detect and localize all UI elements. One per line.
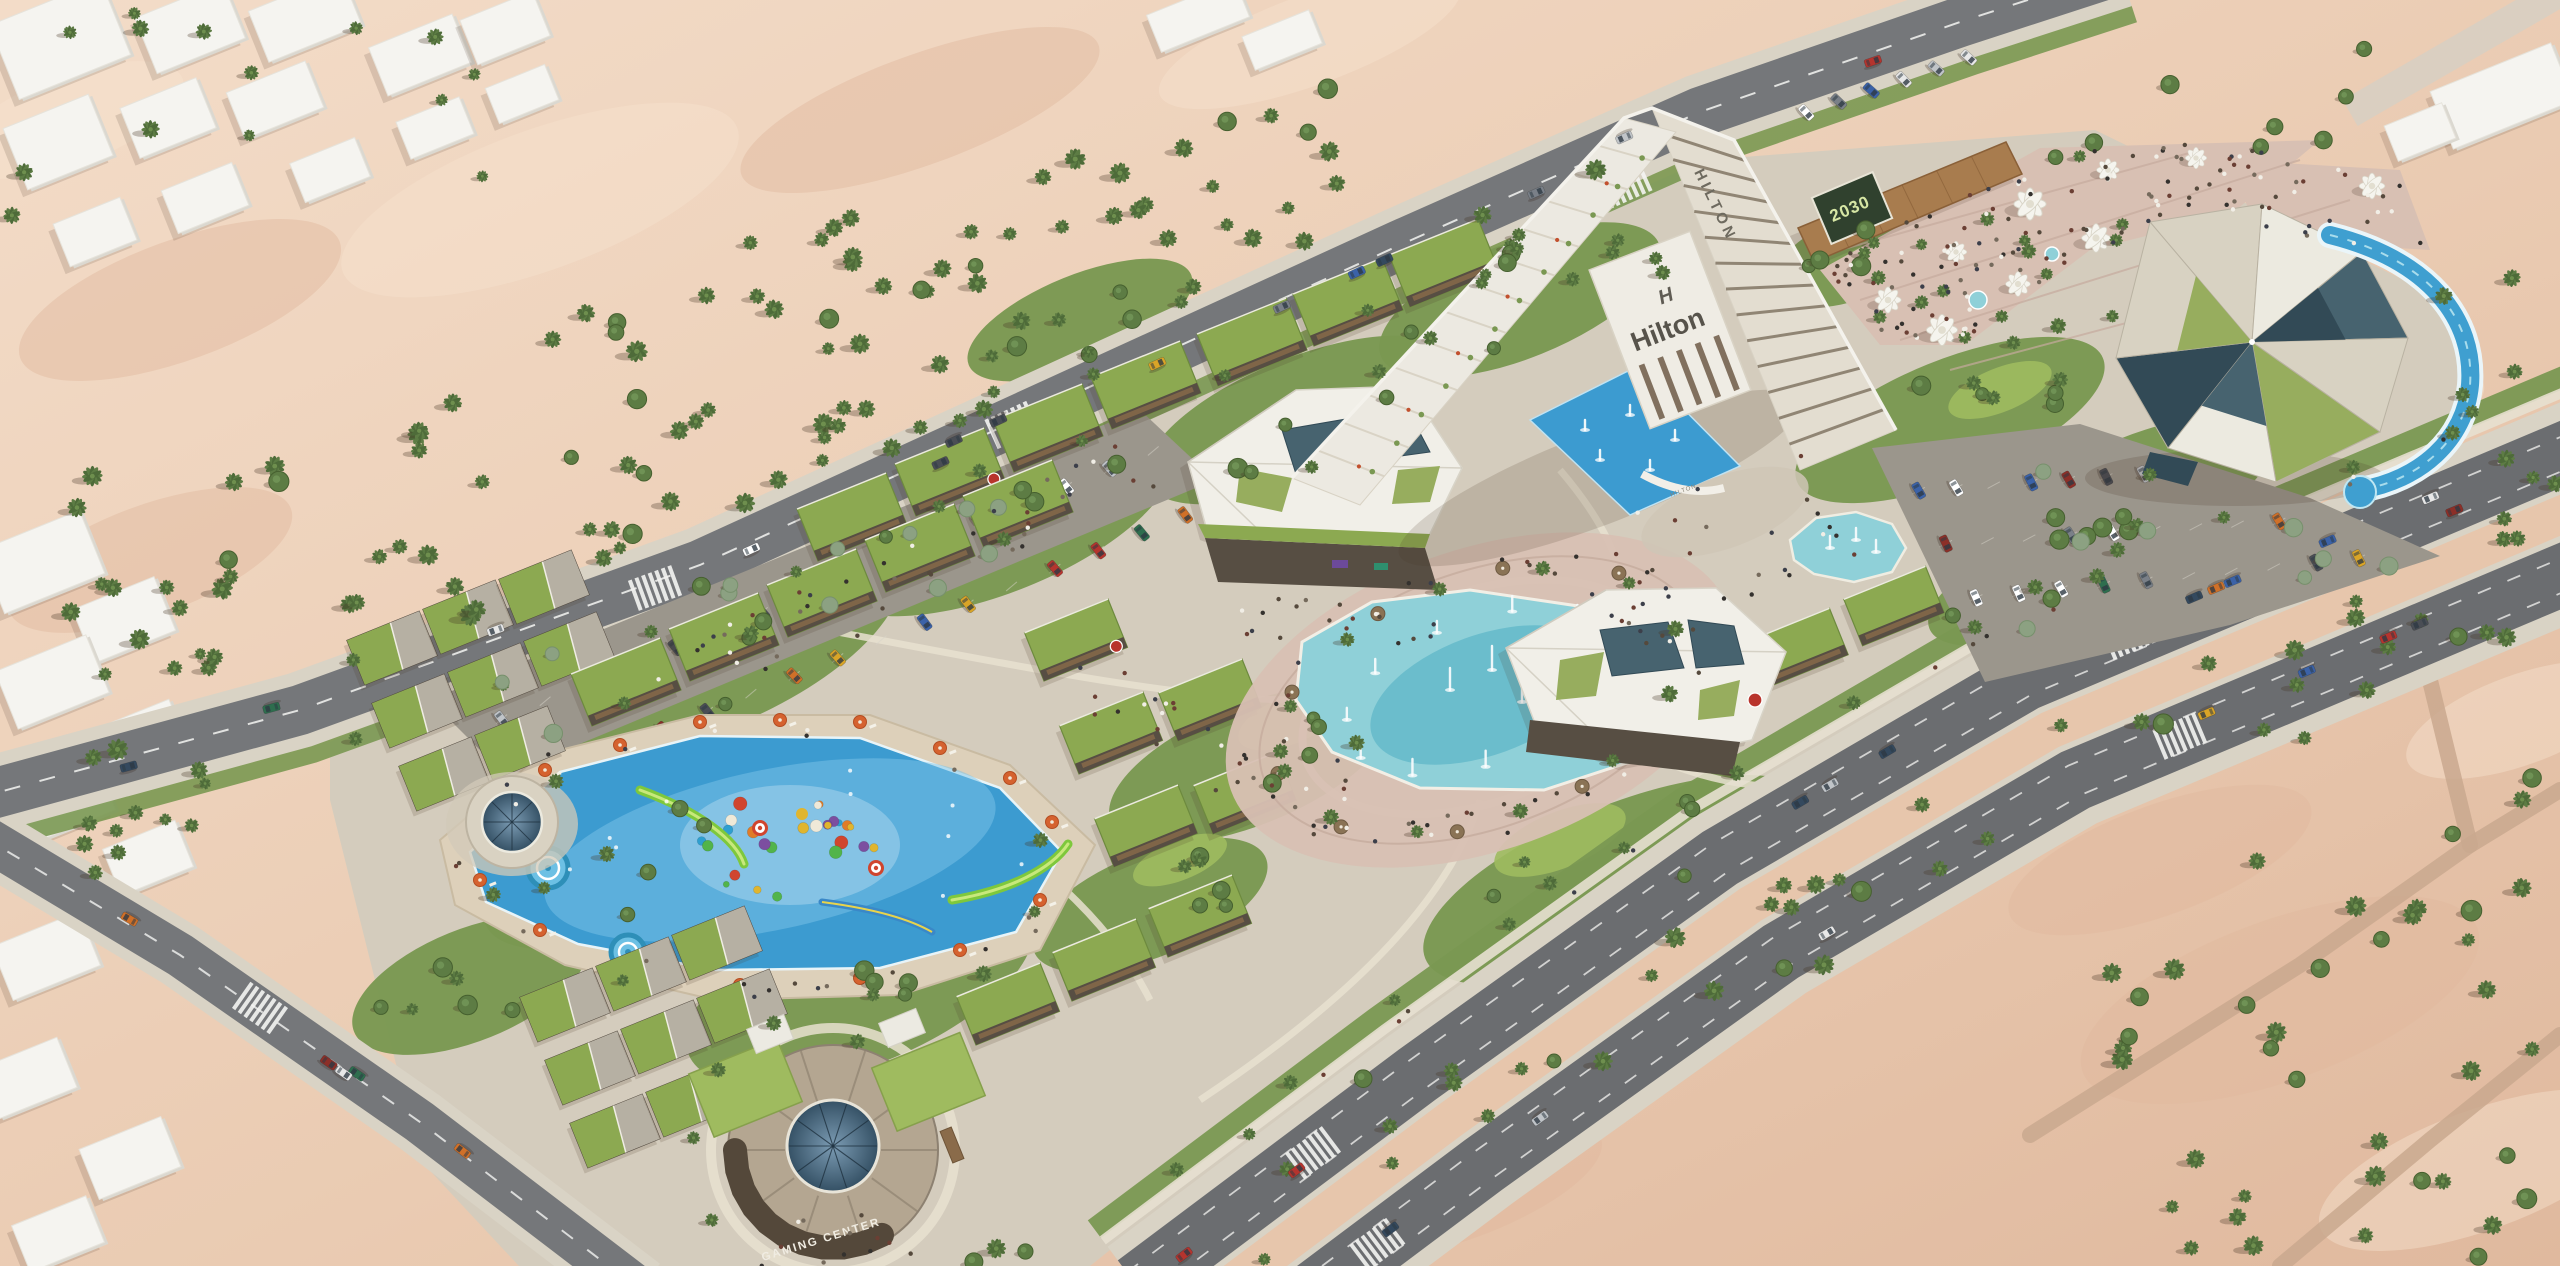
person <box>1377 615 1381 619</box>
person <box>1027 915 1031 919</box>
person <box>1374 612 1378 616</box>
person <box>1010 547 1014 551</box>
person <box>2187 196 2191 200</box>
person <box>2062 260 2066 264</box>
person <box>1899 251 1903 255</box>
person <box>2246 164 2250 168</box>
person <box>1131 478 1135 482</box>
person <box>1673 518 1677 522</box>
person <box>1939 265 1943 269</box>
person <box>971 531 975 535</box>
play-structure <box>814 801 822 809</box>
person <box>695 648 699 652</box>
orange-umbrella <box>854 716 867 729</box>
person <box>2183 143 2187 147</box>
person <box>1637 580 1641 584</box>
person <box>2352 241 2356 245</box>
person <box>927 571 931 575</box>
person <box>1650 568 1654 572</box>
person <box>1668 639 1672 643</box>
person <box>2154 199 2158 203</box>
person <box>983 947 987 951</box>
person <box>1153 697 1157 701</box>
play-structure <box>723 881 729 887</box>
plaza-umbrella <box>1496 561 1510 575</box>
person <box>1691 627 1695 631</box>
person <box>816 986 820 990</box>
person <box>2232 163 2236 167</box>
person <box>1904 220 1908 224</box>
person <box>2365 220 2369 224</box>
person <box>1660 634 1664 638</box>
person <box>1620 619 1624 623</box>
person <box>1638 629 1642 633</box>
person <box>1968 193 1972 197</box>
person <box>2397 184 2401 188</box>
person <box>1641 602 1645 606</box>
person <box>1033 929 1037 933</box>
person <box>2327 219 2331 223</box>
person <box>1311 823 1315 827</box>
person <box>1835 264 1839 268</box>
person <box>1555 791 1559 795</box>
person <box>1553 571 1557 575</box>
person <box>1244 756 1248 760</box>
plaza-umbrella <box>1612 566 1626 580</box>
person <box>2381 194 2385 198</box>
plaza-umbrella <box>1450 825 1464 839</box>
person <box>735 661 739 665</box>
person <box>825 984 829 988</box>
person <box>546 752 550 756</box>
person <box>2044 256 2048 260</box>
person <box>1093 695 1097 699</box>
person <box>767 988 771 992</box>
person <box>1321 1073 1325 1077</box>
person <box>2062 252 2066 256</box>
person <box>1245 632 1249 636</box>
person <box>2343 173 2347 177</box>
person <box>1304 787 1308 791</box>
person <box>875 1236 879 1240</box>
person <box>2016 247 2020 251</box>
person <box>1527 563 1531 567</box>
person <box>1323 825 1327 829</box>
terrace-umbrella <box>1505 294 1509 298</box>
person <box>868 1249 872 1253</box>
person <box>2195 186 2199 190</box>
storefront-sign <box>1332 560 1348 568</box>
person <box>1645 570 1649 574</box>
person <box>713 729 717 733</box>
person <box>2051 607 2055 611</box>
person <box>2390 209 2394 213</box>
person <box>1446 814 1450 818</box>
person <box>1026 521 1030 525</box>
person <box>1406 1009 1410 1013</box>
person <box>1428 634 1432 638</box>
person <box>805 728 809 732</box>
person <box>2037 230 2041 234</box>
person <box>1091 459 1095 463</box>
plaza-pool <box>1969 291 1987 309</box>
person <box>1848 251 1852 255</box>
person <box>1425 823 1429 827</box>
person <box>1704 525 1708 529</box>
person <box>1327 618 1331 622</box>
person <box>1928 214 1932 218</box>
person <box>1351 616 1355 620</box>
person <box>2037 280 2041 284</box>
person <box>992 509 996 513</box>
person <box>1304 598 1308 602</box>
person <box>2267 206 2271 210</box>
person <box>1093 712 1097 716</box>
play-structure <box>753 886 761 894</box>
person <box>1666 594 1670 598</box>
person <box>1373 839 1377 843</box>
person <box>1240 608 1244 612</box>
person <box>2167 194 2171 198</box>
person <box>890 970 894 974</box>
person <box>1465 811 1469 815</box>
person <box>1155 727 1159 731</box>
person <box>848 1231 852 1235</box>
person <box>1164 701 1168 705</box>
person <box>752 995 756 999</box>
person <box>2018 268 2022 272</box>
person <box>1343 778 1347 782</box>
person <box>2011 250 2015 254</box>
person <box>1022 532 1026 536</box>
person <box>1913 333 1917 337</box>
person <box>855 634 859 638</box>
person <box>1261 611 1265 615</box>
person <box>2161 146 2165 150</box>
person <box>1770 531 1774 535</box>
person <box>2084 228 2088 232</box>
person <box>1396 641 1400 645</box>
person <box>722 632 726 636</box>
terrace-umbrella <box>1406 408 1410 412</box>
person <box>1116 709 1120 713</box>
person <box>805 604 809 608</box>
person <box>2227 188 2231 192</box>
person <box>1783 568 1787 572</box>
person <box>1944 317 1948 321</box>
person <box>1113 444 1117 448</box>
person <box>2158 213 2162 217</box>
person <box>798 609 802 613</box>
person <box>2022 177 2026 181</box>
person <box>1843 273 1847 277</box>
person <box>1574 554 1578 558</box>
person <box>887 1241 891 1245</box>
person <box>1946 290 1950 294</box>
person <box>1533 798 1537 802</box>
person <box>1294 604 1298 608</box>
person <box>2146 219 2150 223</box>
person <box>1586 792 1590 796</box>
person <box>2292 190 2296 194</box>
person <box>1985 634 1989 638</box>
person <box>1722 596 1726 600</box>
person <box>644 959 648 963</box>
person <box>1805 498 1809 502</box>
person <box>2348 482 2352 486</box>
person <box>1502 802 1506 806</box>
person <box>1984 212 1988 216</box>
person <box>1142 702 1146 706</box>
person <box>1844 258 1848 262</box>
person <box>1271 794 1275 798</box>
person <box>1312 832 1316 836</box>
person <box>1965 294 1969 298</box>
person <box>796 1220 800 1224</box>
person <box>804 734 808 738</box>
person <box>1750 592 1754 596</box>
person <box>763 667 767 671</box>
person <box>2174 155 2178 159</box>
person <box>1344 826 1348 830</box>
person <box>2258 175 2262 179</box>
person <box>762 636 766 640</box>
person <box>2121 226 2125 230</box>
person <box>623 747 627 751</box>
person <box>2131 154 2135 158</box>
person <box>1973 322 1977 326</box>
aerial-render-image: GAMING CENTER 2030 H Hilton HILTON HILTO… <box>0 0 2560 1266</box>
person <box>2119 230 2123 234</box>
person <box>1799 454 1803 458</box>
person <box>1832 272 1836 276</box>
person <box>2301 179 2305 183</box>
person <box>521 929 525 933</box>
person <box>1852 552 1856 556</box>
person <box>728 622 732 626</box>
person <box>1972 329 1976 333</box>
person <box>1991 207 1995 211</box>
person <box>1974 263 1978 267</box>
person <box>952 768 956 772</box>
person <box>1945 244 1949 248</box>
person <box>1219 743 1223 747</box>
person <box>2307 224 2311 228</box>
play-structure <box>829 846 842 859</box>
person <box>1900 322 1904 326</box>
person <box>2259 150 2263 154</box>
orange-umbrella <box>1046 816 1059 829</box>
orange-umbrella <box>1034 894 1047 907</box>
person <box>1154 742 1158 746</box>
terrace-umbrella <box>1555 238 1559 242</box>
person <box>2227 157 2231 161</box>
person <box>2070 189 2074 193</box>
person <box>1250 629 1254 633</box>
person <box>1954 262 1958 266</box>
person <box>1664 586 1668 590</box>
person <box>1172 706 1176 710</box>
person <box>2154 154 2158 158</box>
person <box>711 634 715 638</box>
person <box>1757 573 1761 577</box>
person <box>1958 278 1962 282</box>
orange-umbrella <box>1004 772 1017 785</box>
person <box>2237 154 2241 158</box>
person <box>1962 226 1966 230</box>
person <box>1078 666 1082 670</box>
person <box>1989 263 1993 267</box>
person <box>1952 243 1956 247</box>
person <box>1407 822 1411 826</box>
person <box>2260 205 2264 209</box>
person <box>2274 195 2278 199</box>
person <box>1967 307 1971 311</box>
person <box>859 1213 863 1217</box>
person <box>797 590 801 594</box>
person <box>1429 581 1433 585</box>
orange-umbrella <box>774 714 787 727</box>
person <box>701 643 705 647</box>
person <box>2024 231 2028 235</box>
person <box>1695 487 1699 491</box>
play-structure <box>702 840 713 851</box>
person <box>1274 702 1278 706</box>
person <box>1895 326 1899 330</box>
person <box>454 864 458 868</box>
person <box>2069 228 2073 232</box>
play-structure <box>730 870 740 880</box>
person <box>1635 510 1639 514</box>
person <box>2166 179 2170 183</box>
person <box>1270 783 1274 787</box>
person <box>1631 605 1635 609</box>
person <box>2418 241 2422 245</box>
person <box>1828 525 1832 529</box>
person <box>1847 282 1851 286</box>
person <box>2017 179 2021 183</box>
person <box>1961 332 1965 336</box>
person <box>1235 780 1239 784</box>
person <box>801 1218 805 1222</box>
person <box>2252 173 2256 177</box>
person <box>2156 203 2160 207</box>
play-structure <box>810 820 822 832</box>
play-structure <box>798 822 809 833</box>
person <box>2294 180 2298 184</box>
person <box>908 1251 912 1255</box>
person <box>2264 224 2268 228</box>
person <box>1977 241 1981 245</box>
person <box>1060 495 1064 499</box>
person <box>1911 307 1915 311</box>
person <box>1631 848 1635 852</box>
person <box>1342 797 1346 801</box>
person <box>1282 739 1286 743</box>
person <box>2441 437 2445 441</box>
person <box>2232 199 2236 203</box>
person <box>1431 622 1435 626</box>
person <box>2351 475 2355 479</box>
person <box>656 677 660 681</box>
person <box>2285 162 2289 166</box>
person <box>1962 327 1966 331</box>
person <box>1338 603 1342 607</box>
person <box>1914 224 1918 228</box>
person <box>793 981 797 985</box>
masterplan-scene: GAMING CENTER 2030 H Hilton HILTON HILTO… <box>0 0 2560 1266</box>
person <box>1067 492 1071 496</box>
person <box>2207 182 2211 186</box>
person <box>1025 510 1029 514</box>
orange-umbrella <box>954 944 967 957</box>
person <box>2006 217 2010 221</box>
person <box>1614 552 1618 556</box>
person <box>2179 157 2183 161</box>
person <box>1975 267 1979 271</box>
person <box>2093 149 2097 153</box>
person <box>1883 260 1887 264</box>
person <box>1276 597 1280 601</box>
play-structure <box>759 838 771 850</box>
person <box>2111 240 2115 244</box>
person <box>1871 281 1875 285</box>
person <box>1293 805 1297 809</box>
person <box>2376 210 2380 214</box>
person <box>1026 526 1030 530</box>
storefront-sign <box>1748 693 1762 707</box>
person <box>1971 642 1975 646</box>
person <box>821 1260 825 1264</box>
person <box>1214 788 1218 792</box>
person <box>1874 309 1878 313</box>
person <box>1904 330 1908 334</box>
person <box>1020 544 1024 548</box>
person <box>742 982 746 986</box>
person <box>1920 284 1924 288</box>
person <box>1238 761 1242 765</box>
person <box>1074 464 1078 468</box>
person <box>1469 812 1473 816</box>
person <box>2222 172 2226 176</box>
person <box>1344 626 1348 630</box>
play-structure <box>772 892 782 902</box>
person <box>1335 758 1339 762</box>
terrace-umbrella <box>1456 351 1460 355</box>
person <box>1836 279 1840 283</box>
person <box>1505 831 1509 835</box>
person <box>2105 176 2109 180</box>
person <box>505 782 509 786</box>
person <box>2231 207 2235 211</box>
person <box>1986 187 1990 191</box>
person <box>2250 149 2254 153</box>
person <box>1609 614 1613 618</box>
person <box>2108 173 2112 177</box>
person <box>2028 192 2032 196</box>
person <box>1821 532 1825 536</box>
terrace-umbrella <box>1357 464 1361 468</box>
person <box>1411 820 1415 824</box>
orange-umbrella <box>694 716 707 729</box>
person <box>1787 573 1791 577</box>
person <box>1572 890 1576 894</box>
person <box>1296 661 1300 665</box>
person <box>1944 285 1948 289</box>
person <box>1890 285 1894 289</box>
person <box>1622 772 1626 776</box>
person <box>1251 776 1255 780</box>
